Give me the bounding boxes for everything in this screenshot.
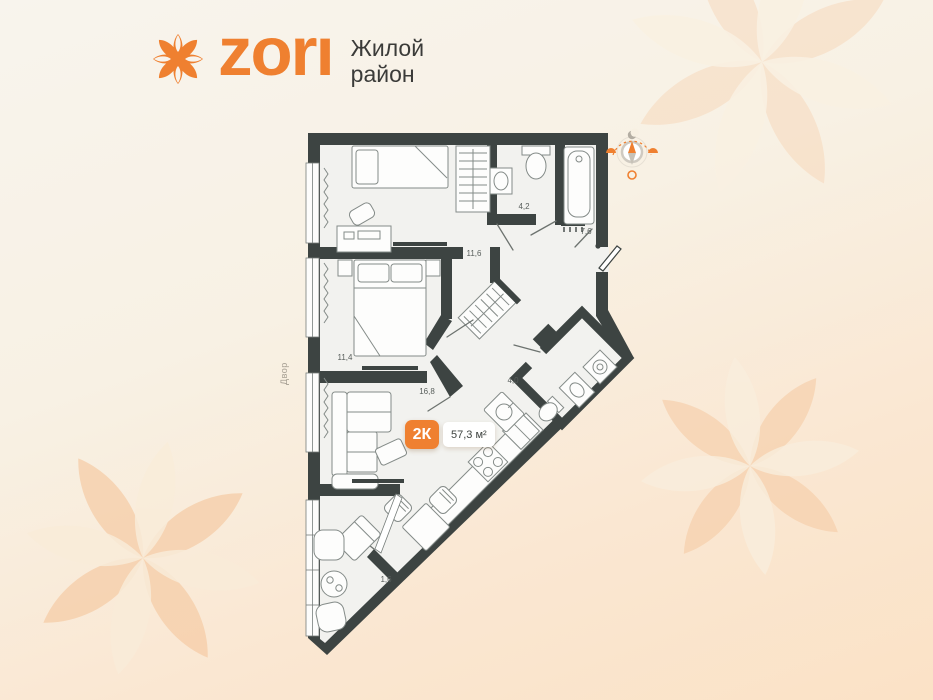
page: 11,6 11,4 16,8 4,2 7,6 4,0 1,6 Двор: [0, 0, 933, 700]
entrance-door: [595, 243, 621, 272]
flower-icon: [150, 31, 206, 87]
apartment-type-badge: 2К: [405, 420, 439, 449]
label-balcony: 1,6: [380, 575, 392, 584]
floor-plan: 11,6 11,4 16,8 4,2 7,6 4,0 1,6 Двор: [0, 0, 933, 700]
pillow: [356, 150, 378, 184]
brand-name: zorı: [218, 22, 333, 82]
brand-tagline: Жилой район: [351, 35, 424, 87]
label-hall: 11,6: [467, 249, 483, 258]
wardrobe-hangers: [456, 146, 490, 212]
pillow: [391, 264, 422, 282]
tv: [393, 242, 447, 246]
tv: [362, 366, 418, 370]
brand-logo: zorı Жилой район: [150, 28, 424, 87]
nightstand: [338, 260, 352, 276]
label-bath-large: 7,6: [580, 227, 592, 236]
label-bath-entry: 4,0: [507, 376, 519, 385]
nightstand: [426, 260, 440, 276]
label-bedroom2: 11,4: [338, 353, 354, 362]
apartment-badge: 2К 57,3 м²: [405, 420, 495, 449]
window-living: [306, 373, 319, 452]
window-bedroom1: [306, 163, 319, 243]
pillow: [358, 264, 389, 282]
label-living: 16,8: [419, 387, 435, 396]
balcony-table: [321, 571, 347, 597]
tv: [352, 479, 404, 483]
apartment-area-badge: 57,3 м²: [443, 422, 495, 447]
sun-path-compass-icon: [606, 128, 658, 179]
armchair: [314, 530, 344, 560]
courtyard-label: Двор: [279, 362, 289, 385]
window-bedroom2: [306, 258, 319, 337]
sofa-back: [332, 392, 347, 476]
label-bath-small: 4,2: [518, 202, 530, 211]
